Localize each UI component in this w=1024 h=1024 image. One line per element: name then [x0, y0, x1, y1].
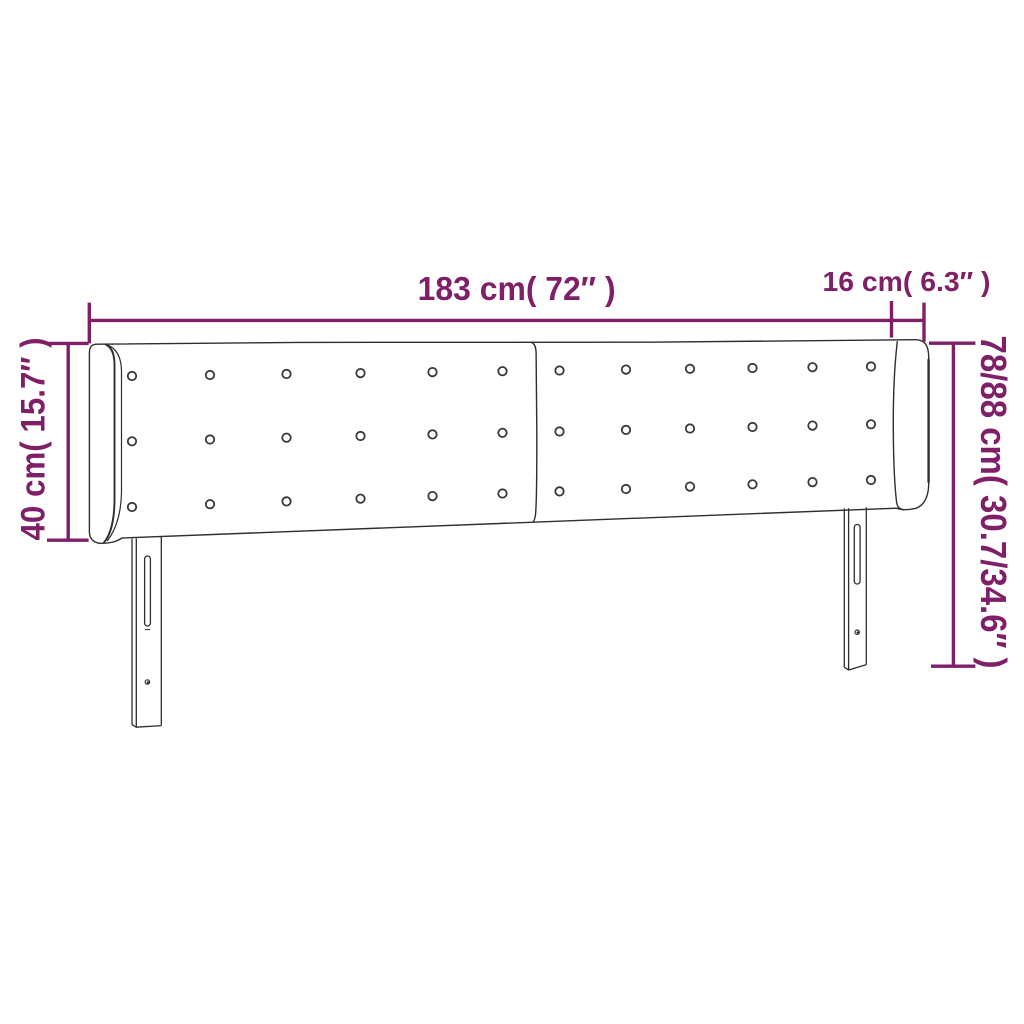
svg-text:16 cm( 6.3″ ): 16 cm( 6.3″ ): [823, 266, 991, 297]
svg-text:78/88 cm( 30.7/34.6″ ): 78/88 cm( 30.7/34.6″ ): [973, 336, 1014, 669]
svg-text:40 cm( 15.7″ ): 40 cm( 15.7″ ): [14, 338, 52, 541]
svg-text:183 cm( 72″ ): 183 cm( 72″ ): [418, 270, 616, 307]
